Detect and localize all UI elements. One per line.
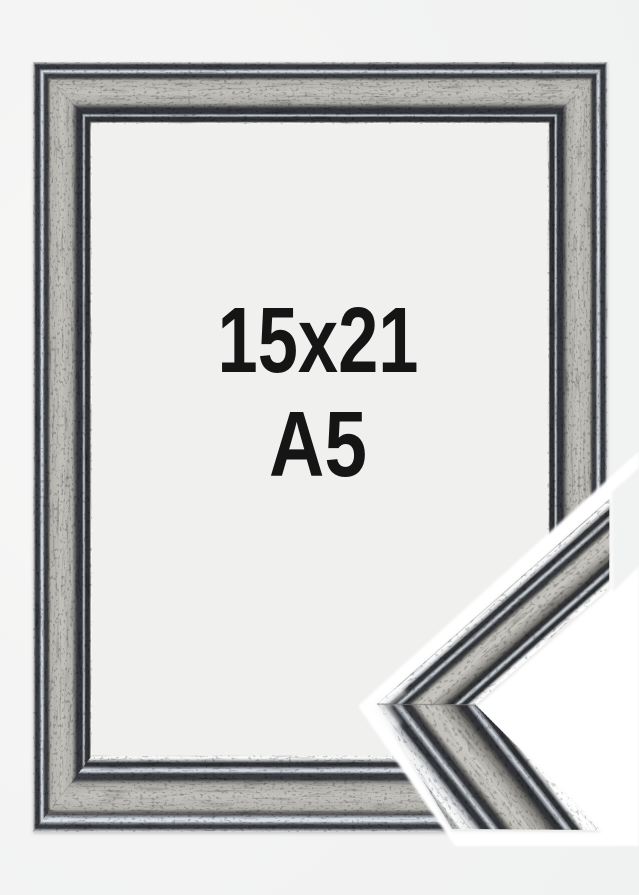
svg-text:15x21: 15x21: [218, 288, 419, 392]
svg-text:A5: A5: [269, 392, 367, 496]
